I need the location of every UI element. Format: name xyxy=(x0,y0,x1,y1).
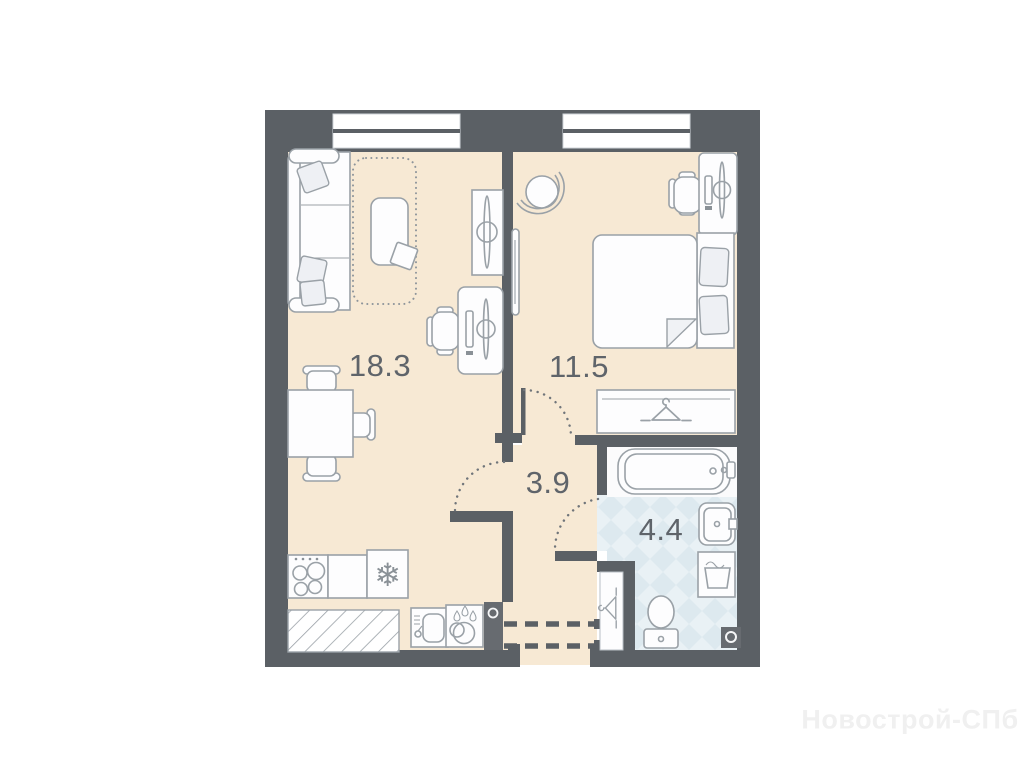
shaft-hatched-area xyxy=(288,610,399,652)
snowflake-icon: ❄ xyxy=(374,556,401,594)
wall-right xyxy=(737,110,760,667)
bathtub xyxy=(618,449,735,494)
kitchen-vent-shaft xyxy=(484,602,503,650)
wall-left xyxy=(265,110,288,667)
room-label-bedroom: 11.5 xyxy=(549,349,609,385)
wall-closet-right xyxy=(623,561,635,651)
entry-threshold-floor xyxy=(520,650,590,665)
desk-chair-bedroom xyxy=(669,172,701,215)
floorplan-canvas: ❄ xyxy=(0,0,1024,768)
fridge: ❄ xyxy=(367,550,408,598)
washing-machine xyxy=(698,552,735,597)
dining-table xyxy=(288,390,353,457)
wall-wardrobe-bathroom xyxy=(597,435,737,447)
faucet-icon xyxy=(727,462,735,478)
floor-drain-shaft xyxy=(721,627,741,648)
hall-closet xyxy=(599,572,623,650)
bed-pillow xyxy=(699,295,729,334)
watermark: Новострой-СПб xyxy=(801,705,1018,736)
wall-partition-cap xyxy=(495,433,522,443)
wall-partition-lower xyxy=(502,522,513,602)
wall-bedroom-hall xyxy=(575,435,599,445)
wall-bottom-right xyxy=(590,650,760,667)
kitchen-sink-cabinet xyxy=(411,608,448,647)
bathroom-doorway-floor xyxy=(597,495,607,551)
room-label-bathroom: 4.4 xyxy=(639,512,684,548)
bedroom-doorway-floor xyxy=(522,435,575,445)
room-label-living: 18.3 xyxy=(349,348,411,384)
wall-partition-mid xyxy=(502,443,513,462)
wall-bathroom-door-leaf xyxy=(555,551,597,561)
window-bedroom xyxy=(563,114,690,148)
wall-tv-bedroom xyxy=(512,229,519,315)
dishwasher xyxy=(446,605,483,647)
living-doorway-floor xyxy=(502,462,513,511)
bathroom-sink xyxy=(699,503,737,545)
tv-console-living xyxy=(472,190,503,275)
bed-pillow xyxy=(699,247,729,286)
wardrobe xyxy=(597,390,735,433)
bedroom-door-leaf xyxy=(521,388,526,435)
floorplan: ❄ xyxy=(0,0,1024,768)
wall-stub-living xyxy=(450,511,513,522)
desk-bedroom xyxy=(699,153,737,235)
kitchen-counter xyxy=(328,555,367,598)
faucet-icon xyxy=(729,519,737,529)
sofa-pillow xyxy=(300,280,326,306)
stove xyxy=(288,555,328,598)
window-living xyxy=(333,114,460,148)
bed xyxy=(593,233,734,348)
room-label-hallway: 3.9 xyxy=(526,465,571,501)
sofa xyxy=(288,149,350,312)
desk-living xyxy=(458,287,503,374)
wall-bathroom-left xyxy=(597,447,607,495)
